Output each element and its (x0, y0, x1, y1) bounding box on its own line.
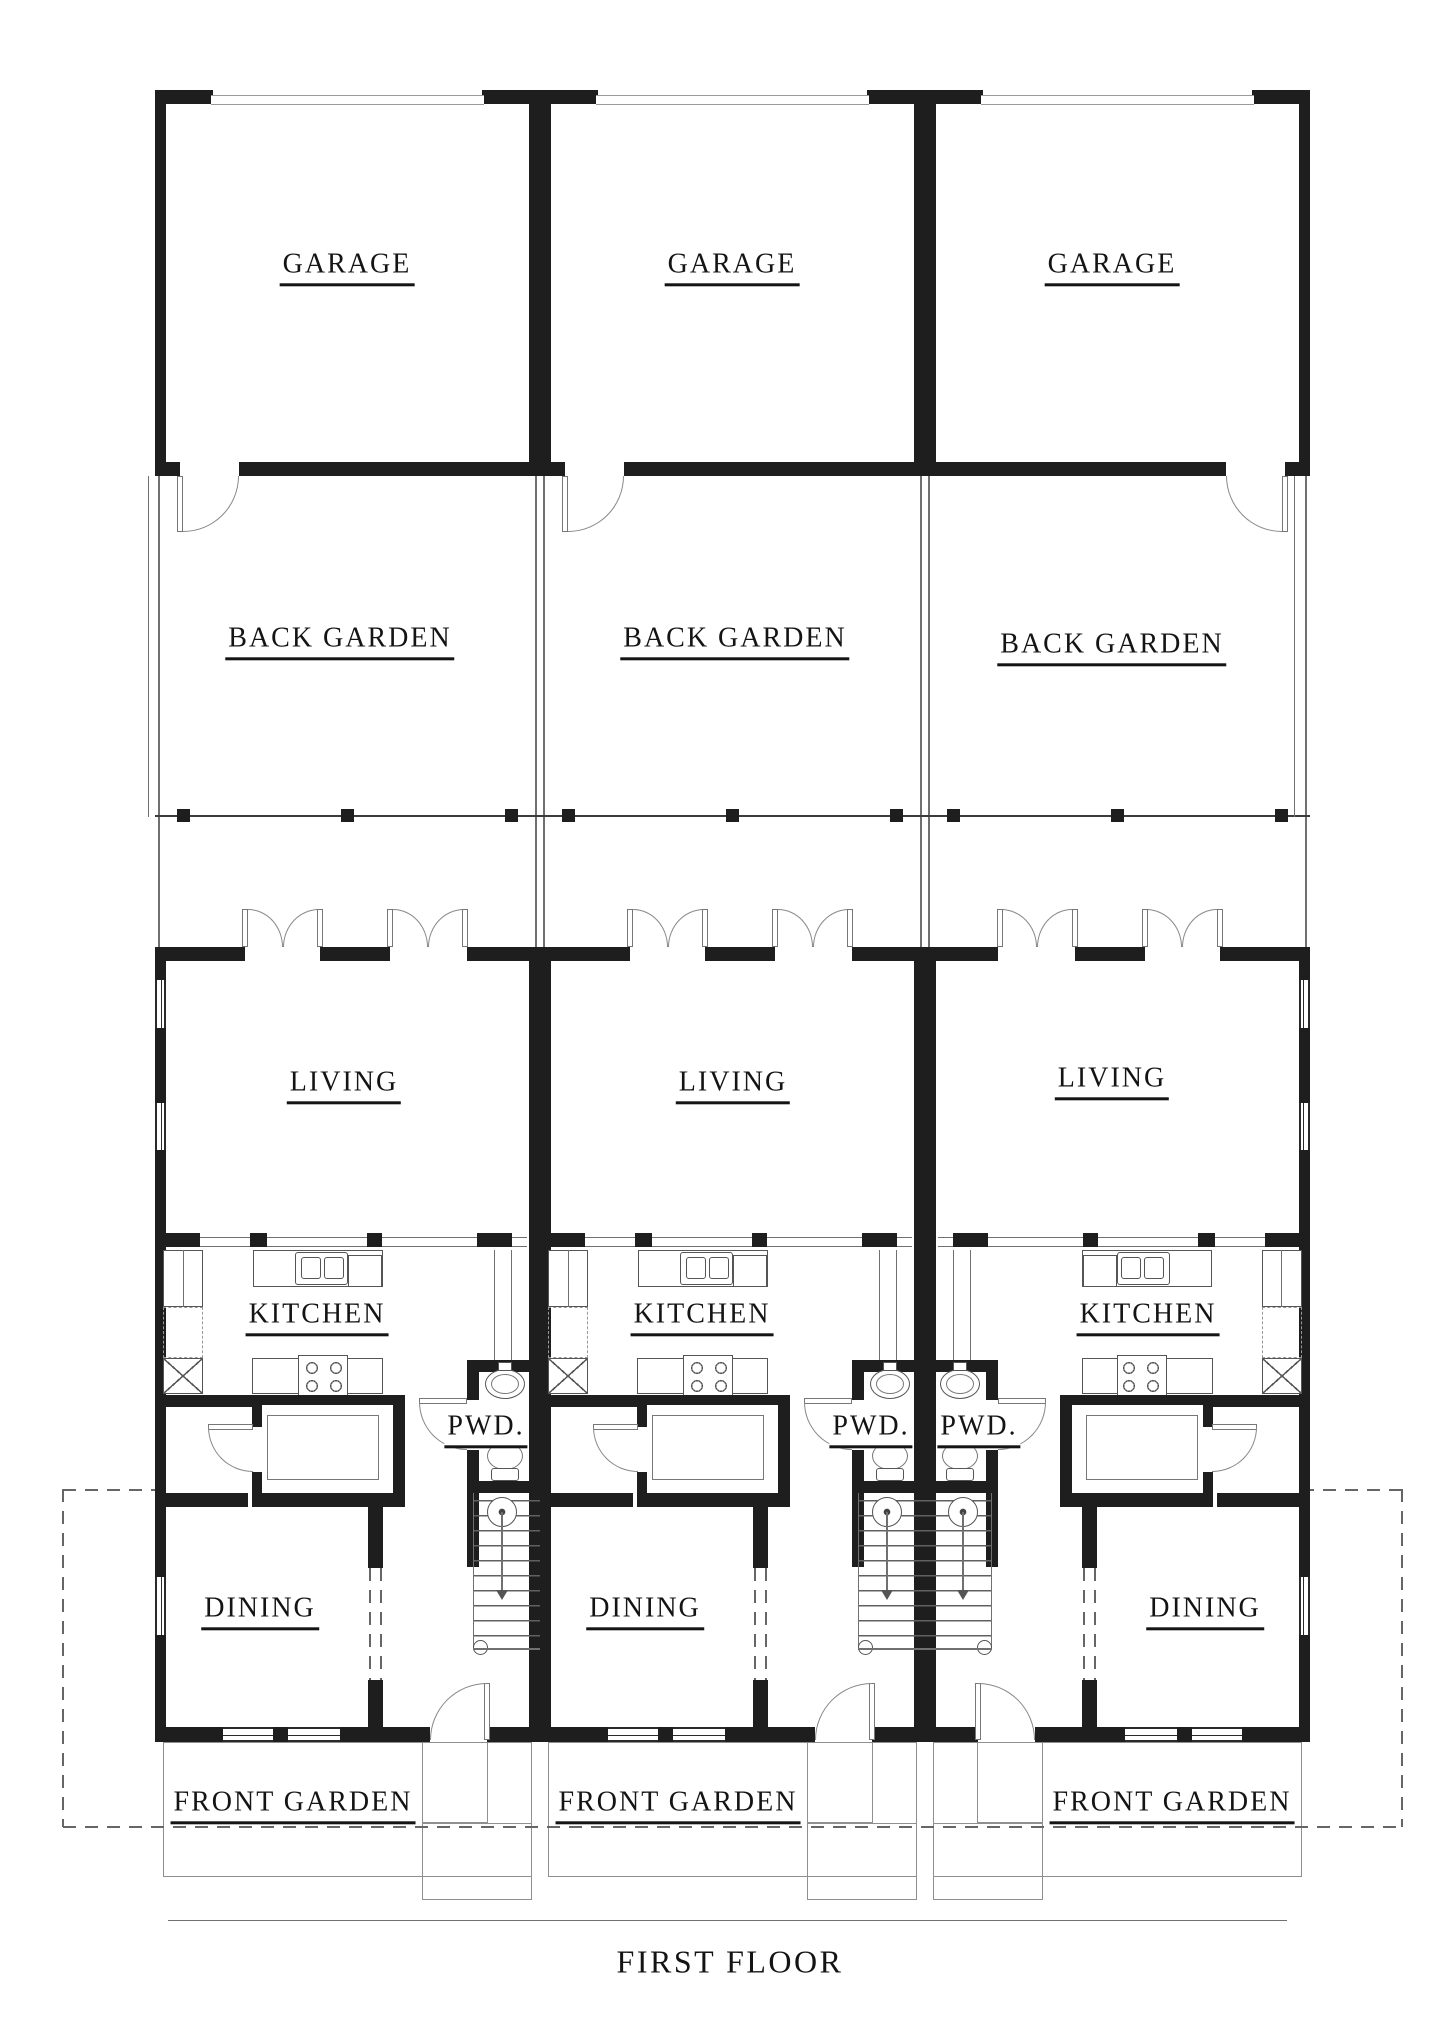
garage-wall-top-left (540, 90, 598, 104)
living-window (1299, 980, 1310, 1028)
french-door-arc (1146, 909, 1182, 947)
divider-line (938, 1237, 1302, 1238)
dining-wall-stub (368, 1680, 383, 1727)
stairs-bottom-line (925, 1648, 992, 1650)
divider-wall-seg (953, 1233, 988, 1247)
dining-wall-top (548, 1493, 633, 1507)
hall-partition-line (494, 1250, 495, 1360)
french-door-jamb (997, 909, 1003, 947)
garage-wall-left (540, 90, 551, 476)
french-door-jamb (317, 909, 323, 947)
stairs-stringer (991, 1493, 992, 1650)
fence-post (726, 809, 739, 822)
pwd-faucet (883, 1362, 897, 1371)
front-path-lower (422, 1823, 532, 1900)
closet-wall-top (252, 1395, 405, 1405)
garage-wall-top-left (1252, 90, 1310, 104)
front-wall-seg (658, 1727, 673, 1742)
french-door-jamb (462, 909, 468, 947)
closet-door-arc (1212, 1427, 1257, 1472)
stove (1117, 1355, 1167, 1397)
divider-wall-seg (250, 1233, 267, 1247)
garage-door (211, 95, 484, 105)
front-window (608, 1727, 658, 1742)
garage-wall-left (155, 90, 166, 476)
closet-wall-left (1203, 1395, 1213, 1427)
rear-wall-seg (1075, 947, 1145, 961)
hall-dash-line (754, 1568, 756, 1680)
dishwasher (733, 1255, 767, 1287)
room-label-back-garden: BACK GARDEN (997, 629, 1226, 666)
hall-dash-line (1083, 1568, 1085, 1680)
hall-dash-line (1094, 1568, 1096, 1680)
divider-wall-seg (752, 1233, 767, 1247)
stove (683, 1355, 733, 1397)
garage-wall-top-left (155, 90, 213, 104)
front-wall-seg (1177, 1727, 1192, 1742)
pwd-wall-bottom (467, 1481, 540, 1493)
room-label-kitchen: KITCHEN (1077, 1299, 1220, 1336)
hall-partition-line (896, 1250, 897, 1360)
sink-bowl (1121, 1257, 1141, 1279)
front-path-upper (807, 1742, 873, 1823)
divider-wall-seg (1198, 1233, 1215, 1247)
front-path-lower (807, 1823, 917, 1900)
french-door-arc (428, 909, 464, 947)
front-wall-seg (540, 1727, 608, 1742)
dining-wall-stub (368, 1493, 383, 1568)
rear-wall-seg (925, 947, 998, 961)
divider-wall-seg (367, 1233, 382, 1247)
french-door-arc (283, 909, 319, 947)
kitchen-hall-wall (155, 1395, 252, 1407)
pwd-sink-bowl (491, 1374, 519, 1394)
divider-line (548, 1246, 912, 1247)
divider-wall-seg (548, 1233, 585, 1247)
garden-boundary-left (158, 476, 160, 947)
closet-wall-left (637, 1395, 647, 1427)
garden-boundary-right (920, 476, 922, 947)
kitchen-hall-wall (540, 1395, 637, 1407)
garage-wall-left (1299, 90, 1310, 476)
property-dash-line (62, 1489, 64, 1827)
divider-line (163, 1246, 527, 1247)
front-window (288, 1727, 340, 1742)
closet-wall-right (778, 1395, 790, 1507)
french-door-arc (778, 909, 813, 947)
rear-wall-seg (852, 947, 925, 961)
floor-plan: GARAGE GARAGE GARAGE BACK GARDEN BACK GA… (0, 0, 1445, 2035)
room-label-pwd: PWD. (937, 1411, 1020, 1448)
kitchen-counter-dashed (548, 1307, 588, 1358)
room-label-kitchen: KITCHEN (631, 1299, 774, 1336)
front-path-upper (977, 1742, 1043, 1823)
french-door-arc (633, 909, 668, 947)
divider-line (163, 1237, 527, 1238)
hall-partition-line (970, 1250, 971, 1360)
front-wall-seg (725, 1727, 815, 1742)
garden-outer-line-right (1294, 476, 1295, 817)
closet-wall-top (1060, 1395, 1213, 1405)
front-window (1192, 1727, 1242, 1742)
garage-door (981, 95, 1254, 105)
kitchen-counter-dashed (1262, 1307, 1302, 1358)
dining-wall-stub (753, 1680, 768, 1727)
french-door-arc (668, 909, 704, 947)
fence-post (1111, 809, 1124, 822)
front-door-arc (815, 1683, 872, 1740)
property-dash-line (1310, 1489, 1402, 1491)
rear-wall-seg (1220, 947, 1310, 961)
front-wall-seg (1035, 1727, 1125, 1742)
sink-bowl (686, 1257, 706, 1279)
garden-boundary-right (928, 476, 930, 947)
french-door-arc (1037, 909, 1072, 947)
kitchen-counter-dashed (163, 1307, 203, 1358)
kitchen-cabinet-line (1281, 1250, 1282, 1307)
french-door-arc (1001, 909, 1037, 947)
closet-shelf (267, 1415, 379, 1480)
hall-partition-line (511, 1250, 512, 1360)
garage-wall-top-right (867, 90, 925, 104)
toilet-tank (876, 1468, 904, 1481)
closet-shelf (652, 1415, 764, 1480)
closet-wall-left (1203, 1472, 1213, 1493)
stairs-arrowhead (881, 1590, 893, 1600)
dishwasher (348, 1255, 382, 1287)
unit-3 (925, 0, 1310, 2035)
front-wall-seg (487, 1727, 540, 1742)
closet-shelf (1086, 1415, 1198, 1480)
divider-wall-seg (635, 1233, 652, 1247)
room-label-front-garden: FRONT GARDEN (556, 1787, 801, 1824)
dining-wall-stub (1082, 1493, 1097, 1568)
rear-wall-seg (467, 947, 540, 961)
dining-window-side (155, 1577, 166, 1635)
garage-back-door-arc (568, 476, 624, 532)
garage-wall-bottom-left (1285, 462, 1310, 476)
french-door-jamb (1142, 909, 1148, 947)
sink-bowl (1144, 1257, 1164, 1279)
pwd-wall-left (852, 1360, 864, 1400)
living-window (155, 980, 166, 1028)
sink-bowl (324, 1257, 344, 1279)
garage-wall-top-right (925, 90, 983, 104)
dining-wall-top (1217, 1493, 1302, 1507)
room-label-kitchen: KITCHEN (246, 1299, 389, 1336)
front-wall-seg (340, 1727, 430, 1742)
divider-wall-seg (163, 1233, 200, 1247)
fence-post (505, 809, 518, 822)
garage-wall-bottom-left (155, 462, 180, 476)
front-path-upper (422, 1742, 488, 1823)
room-label-front-garden: FRONT GARDEN (1050, 1787, 1295, 1824)
dining-wall-stub (1082, 1680, 1097, 1727)
front-window (1125, 1727, 1177, 1742)
pwd-sink-bowl (946, 1374, 974, 1394)
divider-wall-seg (1265, 1233, 1302, 1247)
french-door-arc (393, 909, 428, 947)
pwd-wall-bottom (852, 1481, 925, 1493)
closet-door-arc (208, 1427, 253, 1472)
stairs-bottom-line (473, 1648, 540, 1650)
garden-outer-line-left (148, 476, 149, 817)
dining-wall-stub (753, 1493, 768, 1568)
divider-wall-seg (1083, 1233, 1098, 1247)
garage-back-door-leaf (1282, 476, 1288, 532)
garage-wall-bottom-right (239, 462, 540, 476)
stairs-stringer (473, 1493, 474, 1650)
front-wall-seg (273, 1727, 288, 1742)
kitchen-hall-wall (1213, 1395, 1310, 1407)
room-label-garage: GARAGE (280, 249, 415, 286)
rear-wall-seg (320, 947, 390, 961)
fence-post (1275, 809, 1288, 822)
stove (298, 1355, 348, 1397)
drawing-title: FIRST FLOOR (617, 1944, 844, 1981)
kitchen-cabinet-line (183, 1250, 184, 1307)
hall-dash-line (765, 1568, 767, 1680)
stairs-arrow-line (501, 1512, 503, 1590)
front-door-arc (978, 1683, 1035, 1740)
room-label-front-garden: FRONT GARDEN (171, 1787, 416, 1824)
front-wall-seg (155, 1727, 223, 1742)
rear-wall-seg (155, 947, 245, 961)
divider-wall-seg (862, 1233, 897, 1247)
closet-wall-top (637, 1395, 790, 1405)
front-path-lower (933, 1823, 1043, 1900)
garage-door (596, 95, 869, 105)
room-label-back-garden: BACK GARDEN (620, 623, 849, 660)
toilet-tank (946, 1468, 974, 1481)
closet-door-arc (593, 1427, 638, 1472)
pwd-wall-left (467, 1360, 479, 1400)
french-door-jamb (1217, 909, 1223, 947)
closet-wall-left (252, 1472, 262, 1493)
refrigerator-box (163, 1358, 203, 1394)
garden-boundary-left (1305, 476, 1307, 947)
front-wall-seg (925, 1727, 978, 1742)
fence-post (947, 809, 960, 822)
fence-post (177, 809, 190, 822)
room-label-back-garden: BACK GARDEN (225, 623, 454, 660)
property-dash-line (63, 1489, 155, 1491)
rear-wall-seg (540, 947, 630, 961)
french-door-arc (1182, 909, 1217, 947)
living-window (1299, 1103, 1310, 1150)
property-dash-bottom (63, 1826, 1403, 1828)
room-label-living: LIVING (1055, 1063, 1169, 1100)
refrigerator-box (1262, 1358, 1302, 1394)
unit-1 (155, 0, 540, 2035)
garage-wall-bottom-left (540, 462, 565, 476)
room-label-garage: GARAGE (1045, 249, 1180, 286)
divider-line (548, 1237, 912, 1238)
stairs-bottom-line (858, 1648, 925, 1650)
dishwasher (1083, 1255, 1117, 1287)
garage-wall-top-right (482, 90, 540, 104)
divider-line (938, 1246, 1302, 1247)
pwd-sink-bowl (876, 1374, 904, 1394)
room-label-dining: DINING (201, 1593, 319, 1630)
french-door-jamb (1072, 909, 1078, 947)
pwd-wall-bottom (925, 1481, 998, 1493)
front-door-arc (430, 1683, 487, 1740)
room-label-pwd: PWD. (829, 1411, 912, 1448)
fence-post (341, 809, 354, 822)
divider-wall-seg (477, 1233, 512, 1247)
stairs-arrowhead (957, 1590, 969, 1600)
room-label-garage: GARAGE (665, 249, 800, 286)
french-door-arc (813, 909, 849, 947)
rear-wall-seg (705, 947, 775, 961)
french-door-jamb (702, 909, 708, 947)
front-terrace-outer-line (168, 1920, 1287, 1921)
closet-wall-right (393, 1395, 405, 1507)
toilet-tank (491, 1468, 519, 1481)
room-label-living: LIVING (287, 1067, 401, 1104)
living-window (155, 1103, 166, 1150)
fence-post (890, 809, 903, 822)
pwd-faucet (498, 1362, 512, 1371)
front-window (223, 1727, 273, 1742)
unit-2 (540, 0, 925, 2035)
kitchen-cabinet-line (568, 1250, 569, 1307)
room-label-dining: DINING (586, 1593, 704, 1630)
garage-back-door-arc (183, 476, 239, 532)
garage-back-door-arc (1226, 476, 1282, 532)
hall-partition-line (953, 1250, 954, 1360)
room-label-living: LIVING (676, 1067, 790, 1104)
pwd-wall-left (986, 1360, 998, 1400)
dining-wall-top (163, 1493, 248, 1507)
property-dash-line (1401, 1489, 1403, 1827)
front-wall-seg (872, 1727, 925, 1742)
closet-wall-left (252, 1395, 262, 1427)
pwd-faucet (953, 1362, 967, 1371)
stairs-arrow-line (962, 1512, 964, 1590)
kitchen-cabinet (1262, 1250, 1302, 1307)
refrigerator-box (548, 1358, 588, 1394)
garage-wall-bottom-right (624, 462, 925, 476)
sink-bowl (709, 1257, 729, 1279)
fence-post (562, 809, 575, 822)
stairs-stringer (858, 1493, 859, 1650)
room-label-dining: DINING (1146, 1593, 1264, 1630)
hall-partition-line (879, 1250, 880, 1360)
garage-wall-right (529, 90, 540, 476)
front-window (673, 1727, 725, 1742)
garage-wall-right (914, 90, 925, 476)
dining-window-side (1299, 1577, 1310, 1635)
hall-dash-line (369, 1568, 371, 1680)
sink-bowl (301, 1257, 321, 1279)
french-door-jamb (847, 909, 853, 947)
garage-wall-bottom-right (925, 462, 1226, 476)
garden-boundary-left (543, 476, 545, 947)
room-label-pwd: PWD. (444, 1411, 527, 1448)
garden-boundary-right (535, 476, 537, 947)
french-door-arc (248, 909, 283, 947)
closet-wall-right (1060, 1395, 1072, 1507)
front-wall-seg (1242, 1727, 1310, 1742)
garage-wall-right (925, 90, 936, 476)
stairs-arrowhead (496, 1590, 508, 1600)
closet-wall-left (637, 1472, 647, 1493)
hall-dash-line (380, 1568, 382, 1680)
stairs-arrow-line (886, 1512, 888, 1590)
